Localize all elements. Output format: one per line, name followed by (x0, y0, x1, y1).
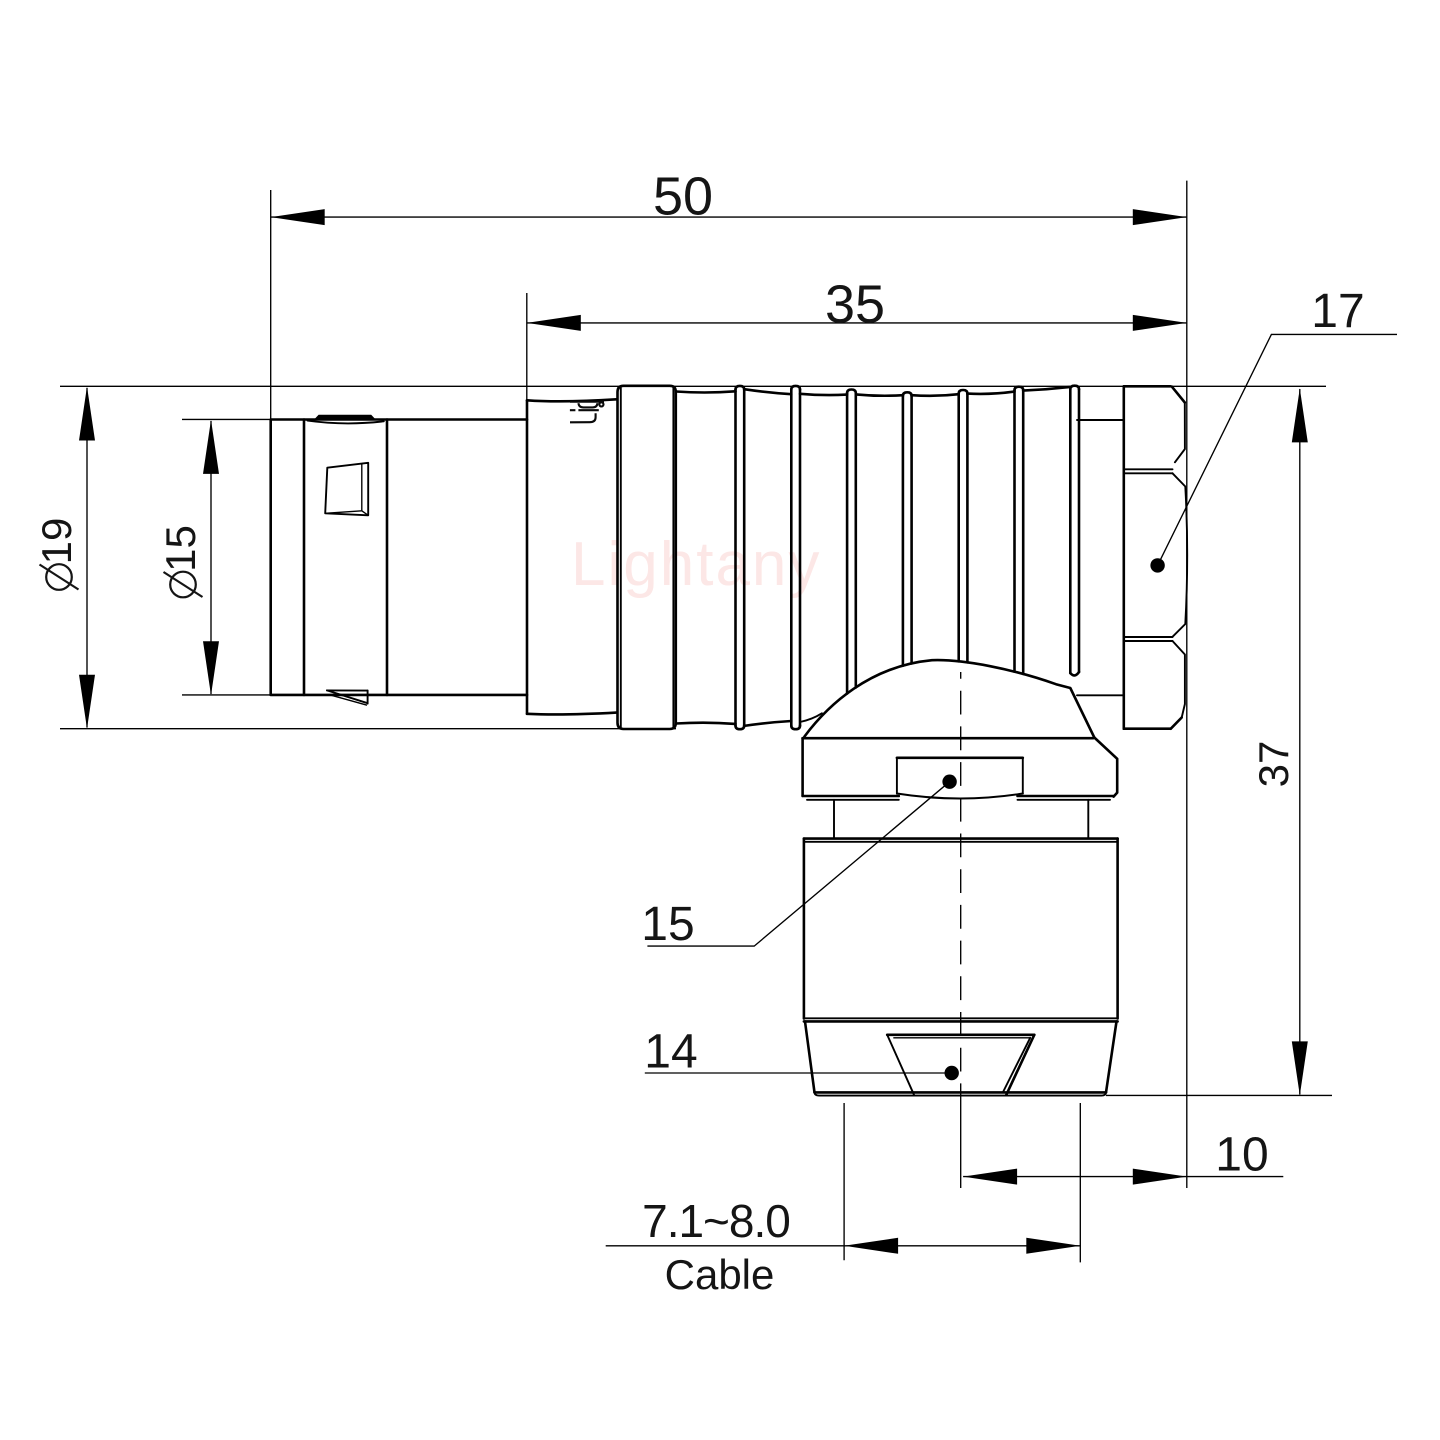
svg-text:10: 10 (1215, 1129, 1268, 1182)
svg-text:15: 15 (641, 898, 694, 951)
svg-text:19: 19 (33, 518, 80, 565)
svg-text:37: 37 (1250, 741, 1297, 788)
svg-text:15: 15 (157, 525, 204, 572)
svg-text:Lightany: Lightany (571, 530, 821, 599)
svg-text:7.1~8.0: 7.1~8.0 (642, 1195, 790, 1247)
svg-text:50: 50 (653, 167, 713, 227)
svg-text:17: 17 (1311, 285, 1364, 338)
svg-text:14: 14 (644, 1026, 697, 1079)
svg-text:Cable: Cable (665, 1251, 775, 1298)
svg-text:35: 35 (825, 275, 885, 335)
